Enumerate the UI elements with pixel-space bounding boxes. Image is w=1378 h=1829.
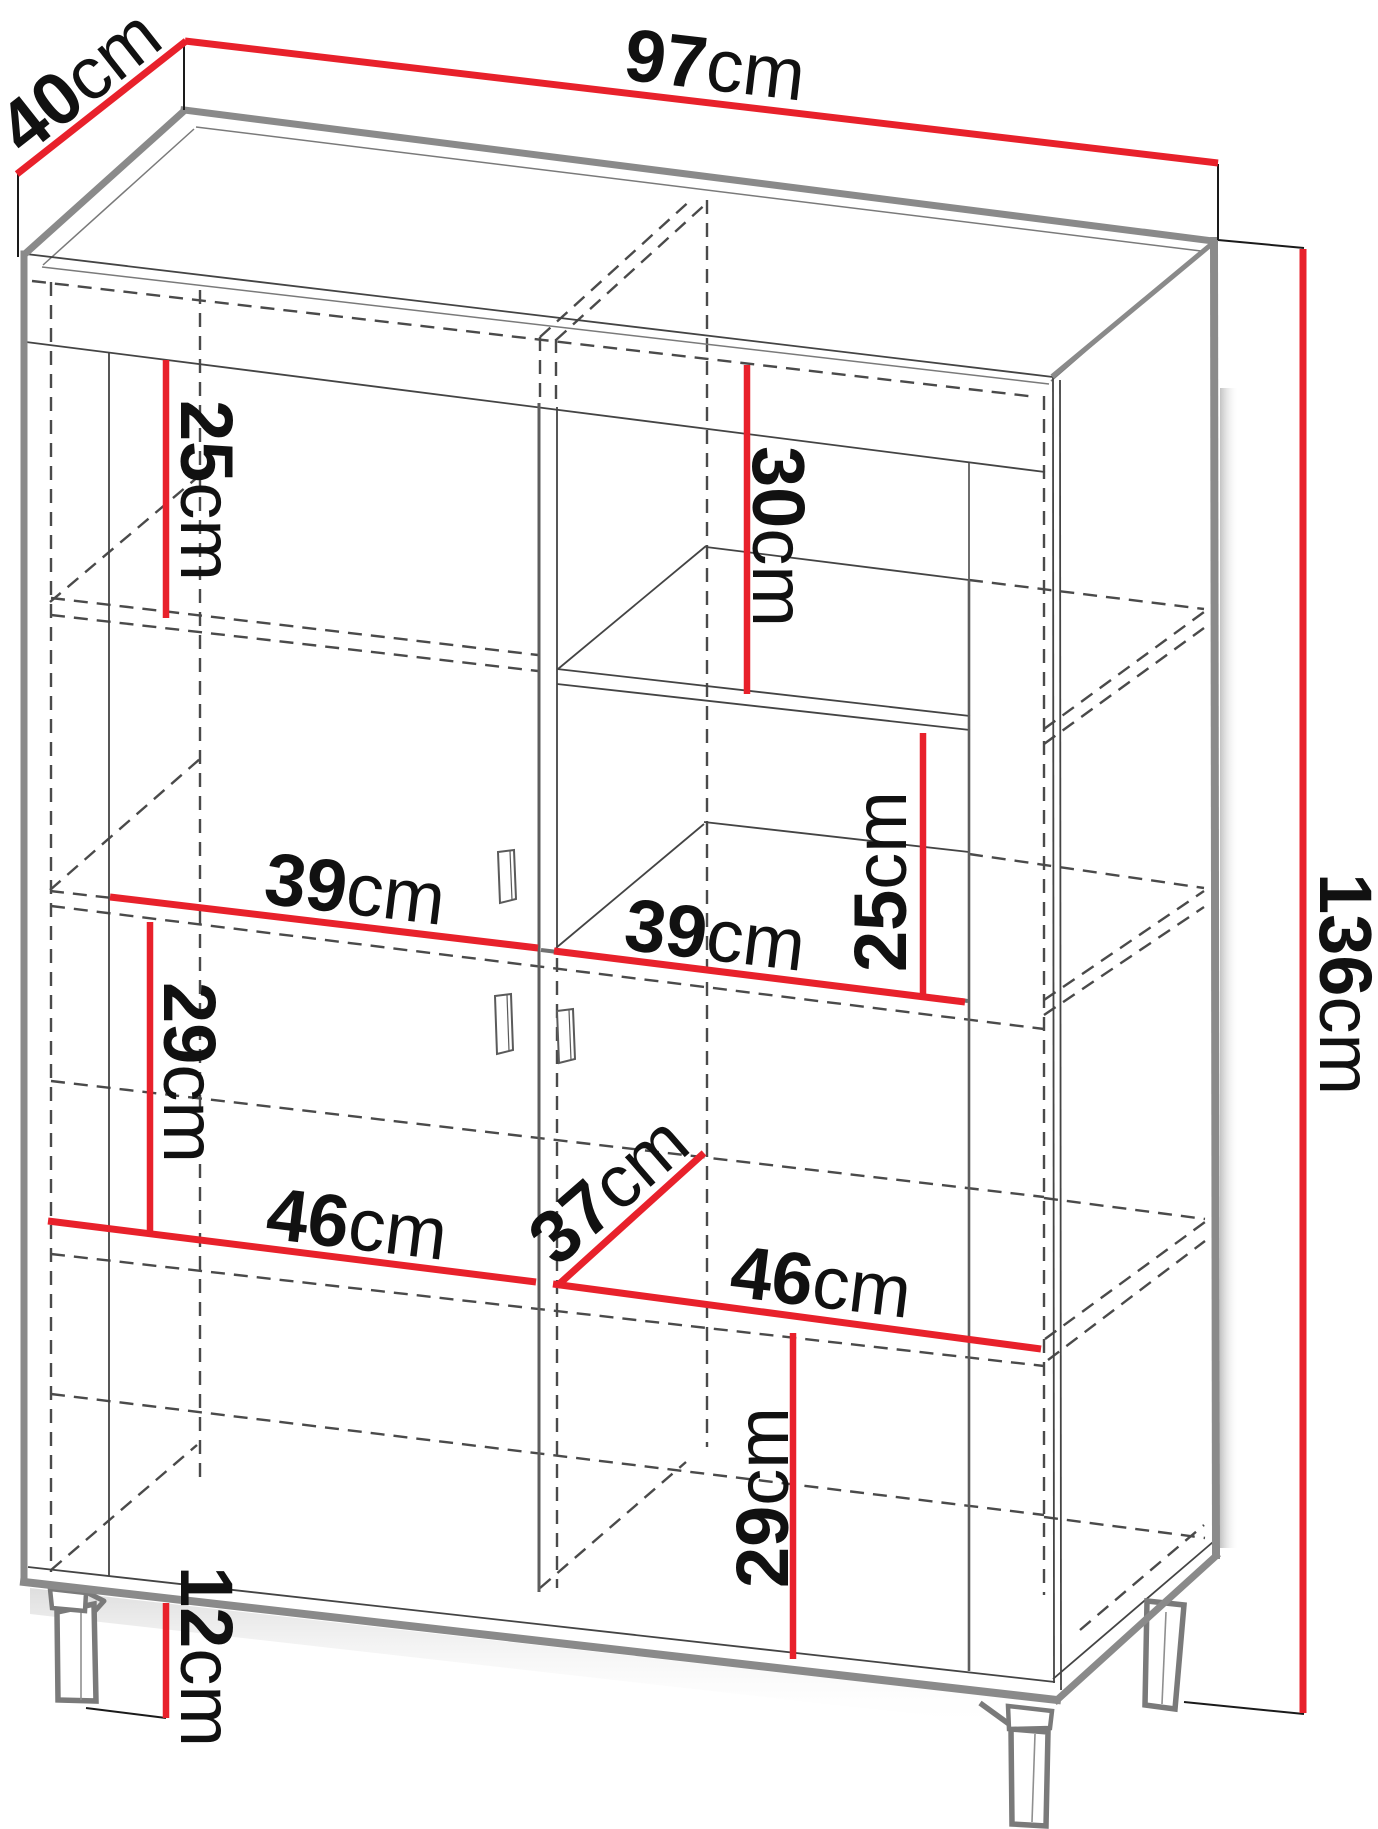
svg-text:136cm: 136cm (1304, 873, 1378, 1095)
svg-text:29cm: 29cm (721, 1407, 804, 1588)
svg-text:25cm: 25cm (839, 791, 922, 972)
svg-text:29cm: 29cm (148, 982, 231, 1163)
svg-text:30cm: 30cm (737, 446, 820, 627)
svg-text:25cm: 25cm (165, 400, 248, 581)
svg-text:12cm: 12cm (165, 1566, 248, 1747)
